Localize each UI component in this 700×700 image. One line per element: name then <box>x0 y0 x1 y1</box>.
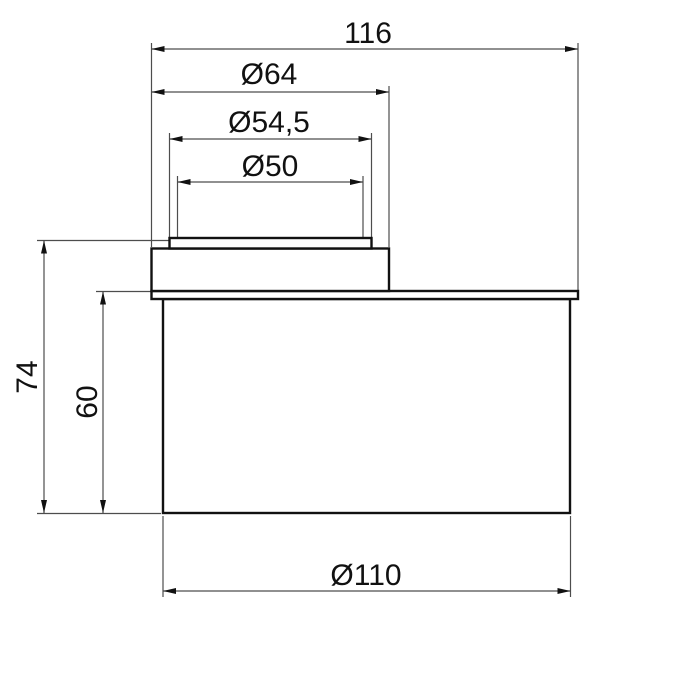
drawing-svg: 116 Ø64 Ø54,5 Ø50 74 60 Ø110 <box>0 0 700 700</box>
dim-label-collar-diameter: Ø64 <box>241 58 298 91</box>
part-body <box>163 299 570 513</box>
dim-label-bore-diameter: Ø50 <box>242 150 299 183</box>
part-rim <box>170 238 372 249</box>
technical-drawing: 116 Ø64 Ø54,5 Ø50 74 60 Ø110 <box>0 0 700 700</box>
part-flange-plate <box>152 291 579 299</box>
dim-label-rim-outer-diameter: Ø54,5 <box>228 106 310 139</box>
dim-label-overall-height: 74 <box>11 360 44 393</box>
dim-label-overall-width: 116 <box>344 17 392 50</box>
dim-label-body-diameter: Ø110 <box>330 559 401 592</box>
dim-label-body-height: 60 <box>71 385 104 418</box>
part-collar <box>152 249 390 292</box>
